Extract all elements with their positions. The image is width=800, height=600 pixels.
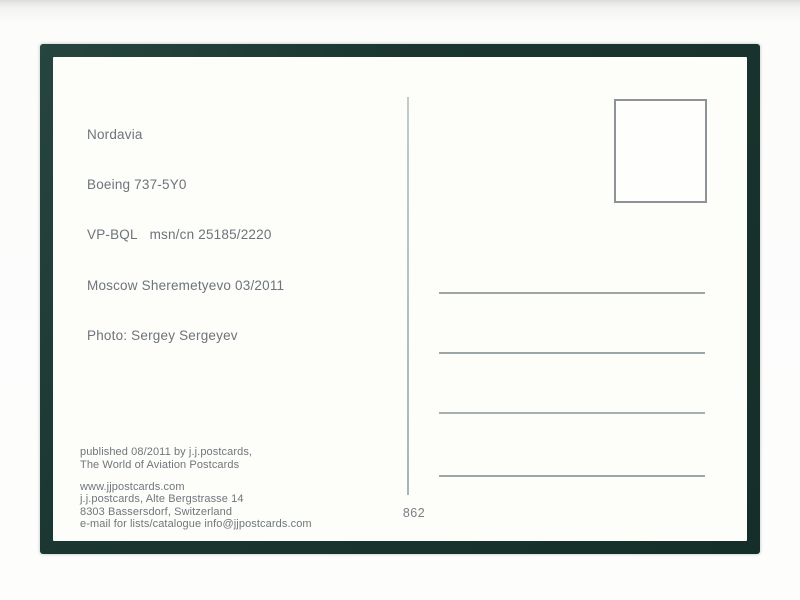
series-line: The World of Aviation Postcards [80, 459, 252, 472]
registration-msn-line: VP-BQL msn/cn 25185/2220 [87, 227, 284, 244]
email-line: e-mail for lists/catalogue info@jjpostca… [80, 518, 312, 530]
contact-block: www.jjpostcards.com j.j.postcards, Alte … [80, 481, 312, 531]
postcard-back: Nordavia Boeing 737-5Y0 VP-BQL msn/cn 25… [53, 57, 747, 541]
aircraft-info-block: Nordavia Boeing 737-5Y0 VP-BQL msn/cn 25… [87, 93, 284, 379]
stamp-box [614, 99, 707, 203]
center-divider-line [407, 97, 409, 495]
address-line [439, 352, 705, 354]
street-line: j.j.postcards, Alte Bergstrasse 14 [80, 493, 312, 505]
publisher-block: published 08/2011 by j.j.postcards, The … [80, 446, 252, 471]
photo-credit: Photo: Sergey Sergeyev [87, 328, 284, 345]
scan-background: Nordavia Boeing 737-5Y0 VP-BQL msn/cn 25… [0, 0, 800, 600]
location-date-line: Moscow Sheremetyevo 03/2011 [87, 278, 284, 295]
airline-name: Nordavia [87, 127, 284, 144]
address-line [439, 292, 705, 294]
website-line: www.jjpostcards.com [80, 481, 312, 493]
address-line [439, 475, 705, 477]
postcard-frame: Nordavia Boeing 737-5Y0 VP-BQL msn/cn 25… [40, 44, 760, 554]
published-line: published 08/2011 by j.j.postcards, [80, 446, 252, 459]
city-line: 8303 Bassersdorf, Switzerland [80, 506, 312, 518]
card-number: 862 [397, 506, 431, 520]
address-line [439, 412, 705, 414]
aircraft-type: Boeing 737-5Y0 [87, 177, 284, 194]
